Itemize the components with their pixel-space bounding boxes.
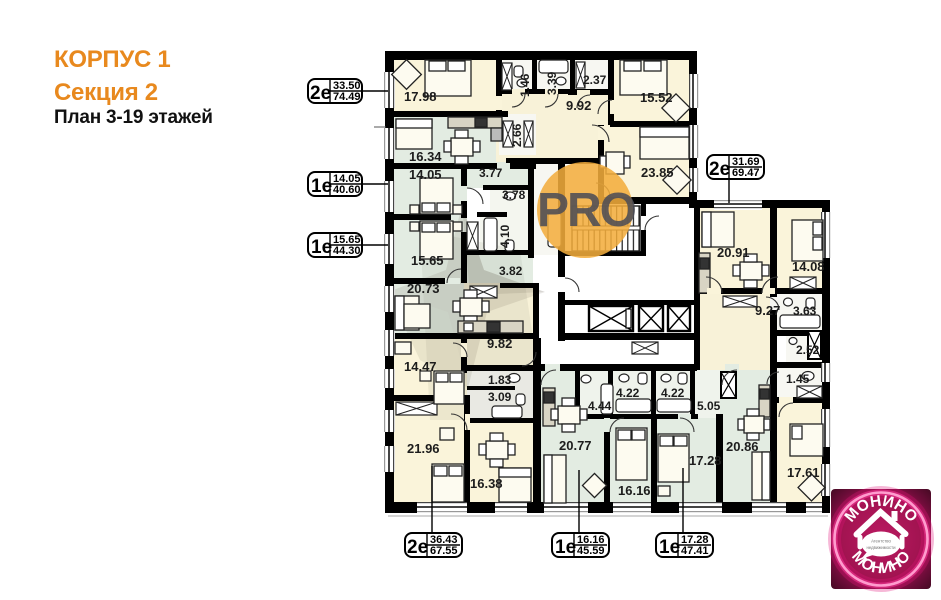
svg-text:20.91: 20.91: [717, 245, 750, 260]
svg-text:4.10: 4.10: [498, 224, 512, 248]
svg-text:9.92: 9.92: [566, 98, 591, 113]
svg-text:3.63: 3.63: [793, 304, 817, 318]
svg-text:1.46: 1.46: [518, 73, 532, 97]
svg-text:9.82: 9.82: [487, 336, 512, 351]
svg-text:16.16: 16.16: [618, 483, 651, 498]
svg-text:20.86: 20.86: [726, 439, 759, 454]
svg-text:1.45: 1.45: [786, 372, 810, 386]
svg-text:1.83: 1.83: [488, 373, 512, 387]
svg-text:15.65: 15.65: [411, 253, 444, 268]
svg-text:5.05: 5.05: [697, 399, 721, 413]
svg-text:23.85: 23.85: [641, 165, 674, 180]
svg-text:20.73: 20.73: [407, 281, 440, 296]
svg-text:16.34: 16.34: [409, 149, 442, 164]
svg-text:3.78: 3.78: [502, 188, 526, 202]
svg-text:недвижимости: недвижимости: [867, 545, 897, 550]
svg-text:74.49: 74.49: [333, 91, 361, 103]
svg-text:Агентство: Агентство: [871, 539, 891, 544]
svg-text:14.47: 14.47: [404, 359, 437, 374]
svg-text:47.41: 47.41: [681, 545, 709, 557]
svg-text:1е: 1е: [659, 537, 680, 558]
svg-text:17.28: 17.28: [689, 453, 722, 468]
svg-text:20.77: 20.77: [559, 438, 592, 453]
svg-text:9.27: 9.27: [755, 303, 780, 318]
svg-text:14.05: 14.05: [409, 167, 442, 182]
svg-text:3.09: 3.09: [488, 390, 512, 404]
svg-text:PRO: PRO: [537, 184, 636, 237]
svg-text:4.44: 4.44: [588, 399, 612, 413]
svg-text:1е: 1е: [555, 537, 576, 558]
svg-text:15.52: 15.52: [640, 90, 673, 105]
svg-text:44.30: 44.30: [333, 245, 361, 257]
svg-text:2е: 2е: [310, 83, 331, 104]
svg-text:17.98: 17.98: [404, 89, 437, 104]
svg-text:17.61: 17.61: [787, 465, 820, 480]
svg-text:3.82: 3.82: [499, 264, 523, 278]
svg-text:4.22: 4.22: [616, 386, 640, 400]
svg-text:45.59: 45.59: [577, 545, 605, 557]
svg-text:14.08: 14.08: [792, 259, 825, 274]
svg-text:69.47: 69.47: [732, 167, 760, 179]
svg-text:21.96: 21.96: [407, 441, 440, 456]
svg-text:2.52: 2.52: [796, 343, 820, 357]
svg-text:2.66: 2.66: [510, 123, 524, 147]
svg-text:1е: 1е: [311, 237, 332, 258]
svg-text:1е: 1е: [311, 176, 332, 197]
svg-text:2е: 2е: [709, 159, 730, 180]
svg-text:2.37: 2.37: [583, 73, 607, 87]
svg-text:3.39: 3.39: [545, 71, 559, 95]
svg-text:40.60: 40.60: [333, 184, 361, 196]
svg-text:67.55: 67.55: [430, 545, 458, 557]
svg-text:16.38: 16.38: [470, 476, 503, 491]
svg-text:4.22: 4.22: [661, 386, 685, 400]
svg-text:3.77: 3.77: [479, 166, 503, 180]
svg-text:2е: 2е: [407, 537, 428, 558]
